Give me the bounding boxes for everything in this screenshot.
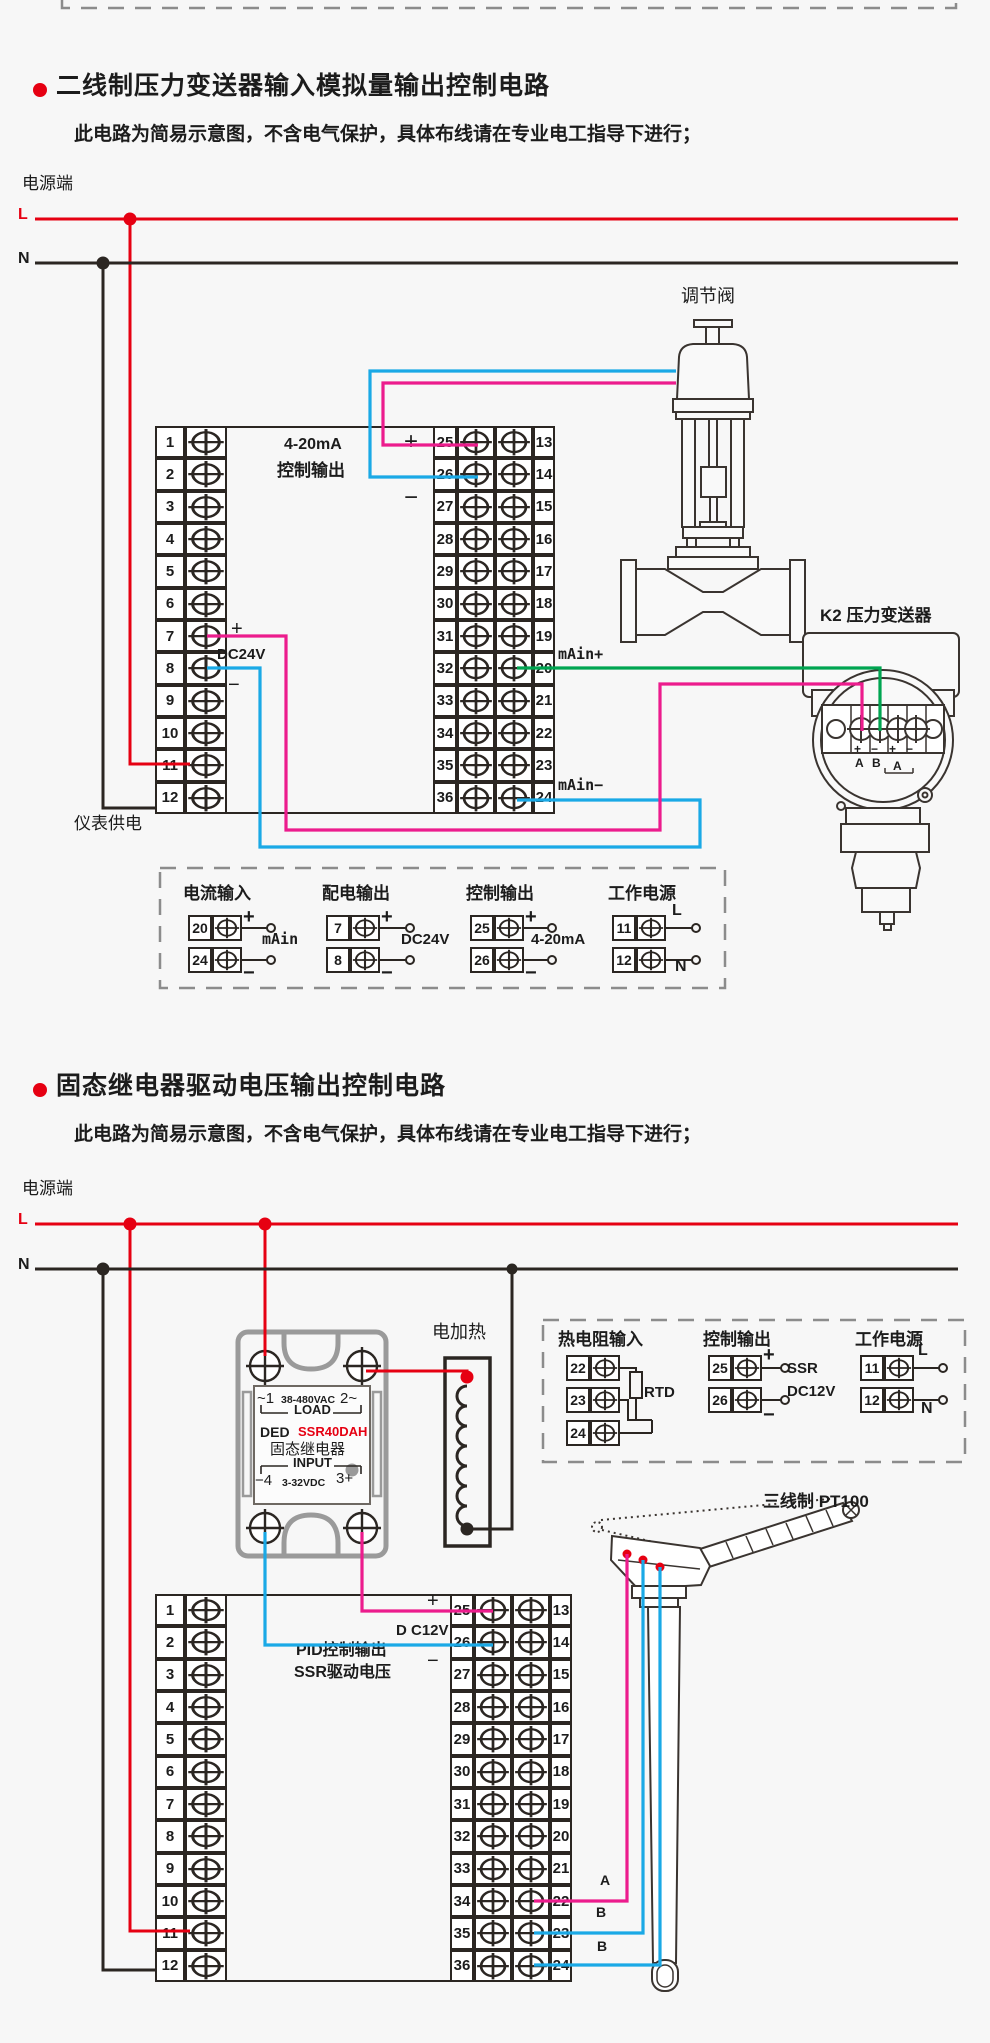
terminal-number-cell: 31: [450, 1788, 474, 1820]
wire-stub: [762, 1399, 781, 1402]
screw-terminal-icon: [187, 687, 225, 715]
ctrl-plus-sign: +: [404, 428, 418, 456]
terminal-number-cell: 1: [155, 1594, 185, 1626]
screw-terminal-icon: [187, 428, 225, 456]
terminal-screw-cell: [474, 1594, 512, 1626]
group-screw-cell: [212, 915, 242, 941]
terminal-screw-cell: [457, 426, 495, 458]
screw-terminal-icon: [459, 622, 493, 650]
terminal-number-cell: 28: [433, 523, 457, 555]
terminal-screw-cell: [474, 1723, 512, 1755]
terminal-screw-cell: [457, 717, 495, 749]
screw-terminal-icon: [187, 1693, 225, 1721]
terminal-screw-cell: [457, 555, 495, 587]
screw-terminal-icon: [514, 1919, 548, 1947]
terminal-number-cell: 14: [550, 1626, 572, 1658]
terminal-screw-cell: [185, 717, 227, 749]
transmitter-label: K2 压力变送器: [820, 606, 931, 626]
screw-terminal-icon: [497, 751, 531, 779]
screw-terminal-icon: [214, 949, 240, 971]
screw-terminal-icon: [187, 784, 225, 812]
terminal-screw-cell: [185, 1820, 227, 1852]
terminal-screw-cell: [512, 1820, 550, 1852]
section2-subtitle: 此电路为简易示意图，不含电气保护，具体布线请在专业电工指导下进行；: [74, 1124, 701, 1146]
terminal-number-cell: 29: [433, 555, 457, 587]
terminal-screw-cell: [185, 1626, 227, 1658]
terminal-screw-cell: [185, 523, 227, 555]
terminal-screw-cell: [457, 620, 495, 652]
terminal-screw-cell: [512, 1756, 550, 1788]
terminal-number-cell: 8: [155, 1820, 185, 1852]
terminal-number-cell: 24: [550, 1950, 572, 1982]
terminal-number-cell: 17: [533, 555, 555, 587]
terminal-number-cell: 19: [533, 620, 555, 652]
screw-terminal-icon: [187, 719, 225, 747]
screw-terminal-icon: [514, 1855, 548, 1883]
terminal-number-cell: 23: [550, 1917, 572, 1949]
group-screw-cell: [636, 915, 666, 941]
terminal-screw-cell: [457, 749, 495, 781]
dc12v-minus-sign: −: [427, 1650, 439, 1673]
main-plus-label: mAin+: [558, 646, 603, 663]
group-terminal-number: 12: [612, 947, 636, 973]
group-output-label: DC24V: [401, 931, 449, 948]
screw-terminal-icon: [497, 719, 531, 747]
group-terminal-number: 24: [566, 1420, 590, 1446]
terminal-number-cell: 14: [533, 458, 555, 490]
group-screw-cell: [494, 947, 524, 973]
group-sign: −: [763, 1404, 775, 1427]
screw-terminal-icon: [187, 525, 225, 553]
screw-terminal-icon: [352, 917, 378, 939]
terminal-number-cell: 22: [533, 717, 555, 749]
terminal-number-cell: 1: [155, 426, 185, 458]
screw-terminal-icon: [514, 1596, 548, 1624]
terminal-screw-cell: [185, 1691, 227, 1723]
pressure-transmitter-drawing: [803, 633, 959, 930]
terminal-number-cell: 2: [155, 458, 185, 490]
rtd-wire-label-a: A: [600, 1872, 610, 1888]
screw-terminal-icon: [187, 590, 225, 618]
terminal-number-cell: 35: [450, 1917, 474, 1949]
group-title: 配电输出: [322, 884, 390, 904]
terminal-number-cell: 33: [450, 1853, 474, 1885]
heater-label: 电加热: [432, 1322, 486, 1343]
transmitter-terminal-label: −: [871, 743, 878, 757]
terminal-screw-cell: [512, 1691, 550, 1723]
open-terminal-circle: [405, 955, 415, 965]
transmitter-terminal-label: −: [906, 743, 913, 757]
screw-terminal-icon: [187, 557, 225, 585]
ssr-brand: DED: [260, 1424, 290, 1440]
ssr-model: SSR40DAH: [298, 1425, 367, 1440]
group-terminal-number: 24: [188, 947, 212, 973]
terminal-number-cell: 9: [155, 1853, 185, 1885]
terminal-screw-cell: [185, 1917, 227, 1949]
terminal-screw-cell: [185, 1885, 227, 1917]
group-screw-cell: [732, 1355, 762, 1381]
terminal-screw-cell: [474, 1885, 512, 1917]
terminal-screw-cell: [185, 749, 227, 781]
screw-terminal-icon: [514, 1790, 548, 1818]
section2-bullet-icon: [33, 1083, 47, 1097]
group-output-label: DC12V: [787, 1383, 835, 1400]
screw-terminal-icon: [497, 493, 531, 521]
terminal-number-cell: 2: [155, 1626, 185, 1658]
terminal-screw-cell: [512, 1659, 550, 1691]
terminal-number-cell: 10: [155, 1885, 185, 1917]
terminal-screw-cell: [474, 1691, 512, 1723]
screw-terminal-icon: [476, 1725, 510, 1753]
terminal-screw-cell: [457, 782, 495, 814]
terminal-number-cell: 11: [155, 1917, 185, 1949]
wire-stub: [666, 927, 692, 930]
terminal-number-cell: 7: [155, 1788, 185, 1820]
screw-terminal-icon: [187, 1919, 225, 1947]
terminal-number-cell: 6: [155, 1756, 185, 1788]
main-minus-label: mAin−: [558, 777, 603, 794]
screw-terminal-icon: [476, 1693, 510, 1721]
screw-terminal-icon: [476, 1790, 510, 1818]
group-screw-cell: [884, 1355, 914, 1381]
group-sign: L: [672, 902, 682, 920]
terminal-screw-cell: [185, 1788, 227, 1820]
screw-terminal-icon: [496, 917, 522, 939]
pt100-sensor-drawing: [592, 1498, 859, 1991]
terminal-screw-cell: [512, 1723, 550, 1755]
terminal-screw-cell: [512, 1885, 550, 1917]
screw-terminal-icon: [592, 1389, 618, 1411]
screw-terminal-icon: [187, 1822, 225, 1850]
terminal-number-cell: 36: [433, 782, 457, 814]
terminal-number-cell: 8: [155, 652, 185, 684]
terminal-number-cell: 32: [450, 1820, 474, 1852]
terminal-number-cell: 7: [155, 620, 185, 652]
section1-subtitle: 此电路为简易示意图，不含电气保护，具体布线请在专业电工指导下进行；: [74, 124, 701, 146]
terminal-screw-cell: [185, 1853, 227, 1885]
terminal-screw-cell: [495, 426, 533, 458]
terminal-screw-cell: [185, 685, 227, 717]
group-title: 控制输出: [703, 1330, 771, 1350]
terminal-number-cell: 26: [433, 458, 457, 490]
terminal-number-cell: 33: [433, 685, 457, 717]
terminal-screw-cell: [495, 588, 533, 620]
terminal-screw-cell: [495, 717, 533, 749]
group-sign: +: [525, 906, 537, 929]
terminal-number-cell: 28: [450, 1691, 474, 1723]
terminal-number-cell: 23: [533, 749, 555, 781]
group-title: 工作电源: [608, 884, 676, 904]
pt100-label: 三线制 PT100: [763, 1492, 869, 1512]
group-sign: +: [763, 1344, 775, 1367]
screw-terminal-icon: [187, 751, 225, 779]
terminal-screw-cell: [495, 491, 533, 523]
group-output-label: RTD: [644, 1384, 675, 1401]
terminal-number-cell: 36: [450, 1950, 474, 1982]
terminal-screw-cell: [185, 555, 227, 587]
ssr-load-label: LOAD: [294, 1403, 331, 1418]
section2-title: 固态继电器驱动电压输出控制电路: [56, 1072, 446, 1101]
terminal-screw-cell: [495, 782, 533, 814]
group-sign: N: [675, 958, 687, 976]
ssr-input-label: INPUT: [293, 1456, 332, 1471]
screw-terminal-icon: [638, 949, 664, 971]
screw-terminal-icon: [187, 1596, 225, 1624]
ssr-dc-terminal-4: −4: [255, 1472, 272, 1489]
terminal-screw-cell: [185, 1950, 227, 1982]
group-title: 控制输出: [466, 884, 534, 904]
screw-terminal-icon: [187, 1952, 225, 1980]
terminal-screw-cell: [457, 458, 495, 490]
group-screw-cell: [590, 1387, 620, 1413]
wire-stub: [242, 959, 267, 962]
neutral-label-2: N: [18, 1256, 30, 1274]
terminal-number-cell: 4: [155, 1691, 185, 1723]
screw-terminal-icon: [514, 1725, 548, 1753]
terminal-screw-cell: [512, 1594, 550, 1626]
screw-terminal-icon: [592, 1422, 618, 1444]
group-terminal-number: 23: [566, 1387, 590, 1413]
transmitter-terminal-label: A: [855, 757, 864, 771]
ssr-ac-terminal-2: 2~: [340, 1390, 357, 1407]
terminal-screw-cell: [474, 1950, 512, 1982]
group-terminal-number: 26: [708, 1387, 732, 1413]
terminal-screw-cell: [185, 1723, 227, 1755]
terminal-screw-cell: [474, 1788, 512, 1820]
screw-terminal-icon: [214, 917, 240, 939]
rtd-wire-label-b1: B: [596, 1904, 606, 1920]
screw-terminal-icon: [497, 654, 531, 682]
group-screw-cell: [494, 915, 524, 941]
terminal-screw-cell: [474, 1917, 512, 1949]
group-title: 工作电源: [855, 1330, 923, 1350]
screw-terminal-icon: [497, 525, 531, 553]
terminal-number-cell: 34: [450, 1885, 474, 1917]
screw-terminal-icon: [459, 557, 493, 585]
terminal-screw-cell: [495, 555, 533, 587]
wire-stub: [914, 1367, 939, 1370]
group-screw-cell: [350, 915, 380, 941]
terminal-screw-cell: [495, 685, 533, 717]
transmitter-terminal-label: A: [893, 760, 902, 774]
wire-stub: [524, 959, 548, 962]
terminal-screw-cell: [474, 1820, 512, 1852]
group-screw-cell: [212, 947, 242, 973]
terminal-screw-cell: [512, 1950, 550, 1982]
control-valve-drawing: [621, 320, 805, 642]
screw-terminal-icon: [187, 1855, 225, 1883]
terminal-screw-cell: [512, 1853, 550, 1885]
terminal-number-cell: 12: [155, 782, 185, 814]
screw-terminal-icon: [459, 751, 493, 779]
screw-terminal-icon: [476, 1887, 510, 1915]
group-terminal-number: 7: [326, 915, 350, 941]
terminal-number-cell: 16: [533, 523, 555, 555]
output-range-label: 4-20mA: [284, 436, 342, 454]
group-output-label: SSR: [787, 1360, 818, 1377]
screw-terminal-icon: [459, 784, 493, 812]
previous-box-dashed-edge: [62, 0, 956, 8]
terminal-number-cell: 34: [433, 717, 457, 749]
group-terminal-number: 11: [612, 915, 636, 941]
terminal-number-cell: 11: [155, 749, 185, 781]
terminal-number-cell: 4: [155, 523, 185, 555]
group-screw-cell: [636, 947, 666, 973]
screw-terminal-icon: [514, 1758, 548, 1786]
power-terminal-label-1: 电源端: [22, 174, 73, 194]
screw-terminal-icon: [187, 460, 225, 488]
screw-terminal-icon: [187, 1628, 225, 1656]
screw-terminal-icon: [476, 1822, 510, 1850]
group-terminal-number: 12: [860, 1387, 884, 1413]
section1-title: 二线制压力变送器输入模拟量输出控制电路: [56, 72, 550, 101]
screw-terminal-icon: [497, 590, 531, 618]
screw-terminal-icon: [187, 1758, 225, 1786]
screw-terminal-icon: [497, 557, 531, 585]
dc24v-plus-sign: +: [231, 618, 243, 641]
open-terminal-circle: [938, 1395, 948, 1405]
terminal-number-cell: 27: [433, 491, 457, 523]
section1-bullet-icon: [33, 83, 47, 97]
terminal-screw-cell: [474, 1756, 512, 1788]
group-sign: +: [381, 906, 393, 929]
terminal-number-cell: 30: [433, 588, 457, 620]
terminal-screw-cell: [512, 1917, 550, 1949]
group-sign: N: [921, 1400, 933, 1418]
terminal-number-cell: 16: [550, 1691, 572, 1723]
screw-terminal-icon: [592, 1357, 618, 1379]
terminal-number-cell: 22: [550, 1885, 572, 1917]
pid-output-label-2: SSR驱动电压: [294, 1664, 391, 1682]
valve-label: 调节阀: [681, 286, 735, 307]
group-sign: −: [381, 962, 393, 985]
group-sign: +: [243, 906, 255, 929]
terminal-number-cell: 5: [155, 555, 185, 587]
screw-terminal-icon: [459, 654, 493, 682]
open-terminal-circle: [691, 923, 701, 933]
dc12v-plus-sign: +: [427, 1590, 439, 1613]
terminal-number-cell: 31: [433, 620, 457, 652]
group-terminal-number: 8: [326, 947, 350, 973]
power-terminal-label-2: 电源端: [22, 1179, 73, 1199]
group-screw-cell: [590, 1420, 620, 1446]
screw-terminal-icon: [514, 1952, 548, 1980]
group-screw-cell: [590, 1355, 620, 1381]
screw-terminal-icon: [514, 1628, 548, 1656]
terminal-number-cell: 30: [450, 1756, 474, 1788]
terminal-screw-cell: [512, 1788, 550, 1820]
screw-terminal-icon: [459, 687, 493, 715]
instrument-supply-label: 仪表供电: [74, 814, 142, 834]
terminal-screw-cell: [457, 588, 495, 620]
group-title: 电流输入: [183, 884, 251, 904]
open-terminal-circle: [691, 955, 701, 965]
terminal-number-cell: 25: [433, 426, 457, 458]
screw-terminal-icon: [638, 917, 664, 939]
ssr-ac-terminal-1: ~1: [257, 1390, 274, 1407]
screw-terminal-icon: [476, 1919, 510, 1947]
open-terminal-circle: [938, 1363, 948, 1373]
screw-terminal-icon: [459, 460, 493, 488]
group-terminal-number: 25: [470, 915, 494, 941]
screw-terminal-icon: [514, 1822, 548, 1850]
terminal-number-cell: 21: [533, 685, 555, 717]
group-sign: −: [243, 962, 255, 985]
screw-terminal-icon: [476, 1855, 510, 1883]
terminal-number-cell: 5: [155, 1723, 185, 1755]
open-terminal-circle: [547, 955, 557, 965]
screw-terminal-icon: [476, 1661, 510, 1689]
group-screw-cell: [350, 947, 380, 973]
terminal-screw-cell: [185, 458, 227, 490]
terminal-screw-cell: [474, 1853, 512, 1885]
terminal-screw-cell: [474, 1626, 512, 1658]
terminal-screw-cell: [457, 523, 495, 555]
wire-stub: [380, 959, 406, 962]
screw-terminal-icon: [459, 525, 493, 553]
neutral-label-1: N: [18, 250, 30, 268]
screw-terminal-icon: [459, 719, 493, 747]
screw-terminal-icon: [886, 1389, 912, 1411]
screw-terminal-icon: [497, 784, 531, 812]
ssr-dc-rating: 3-32VDC: [282, 1477, 325, 1489]
pid-output-label-1: PID控制输出: [296, 1642, 387, 1660]
group-terminal-number: 25: [708, 1355, 732, 1381]
dc12v-label: D C12V: [396, 1622, 449, 1639]
dc24v-minus-sign: −: [228, 674, 240, 697]
group-screw-cell: [884, 1387, 914, 1413]
rtd-wire-label-b2: B: [597, 1938, 607, 1954]
transmitter-terminal-label: B: [872, 757, 881, 771]
screw-terminal-icon: [187, 1725, 225, 1753]
screw-terminal-icon: [514, 1693, 548, 1721]
transmitter-terminal-label: +: [889, 743, 896, 757]
terminal-number-cell: 21: [550, 1853, 572, 1885]
terminal-number-cell: 20: [533, 652, 555, 684]
dc24v-label: DC24V: [217, 646, 265, 663]
screw-terminal-icon: [352, 949, 378, 971]
terminal-screw-cell: [495, 620, 533, 652]
terminal-number-cell: 12: [155, 1950, 185, 1982]
terminal-number-cell: 15: [533, 491, 555, 523]
control-output-label: 控制输出: [277, 461, 345, 481]
terminal-number-cell: 13: [533, 426, 555, 458]
terminal-number-cell: 26: [450, 1626, 474, 1658]
terminal-number-cell: 25: [450, 1594, 474, 1626]
terminal-number-cell: 29: [450, 1723, 474, 1755]
ctrl-minus-sign: −: [404, 484, 418, 512]
terminal-number-cell: 32: [433, 652, 457, 684]
live-label-2: L: [18, 1211, 28, 1229]
terminal-screw-cell: [512, 1626, 550, 1658]
group-terminal-number: 26: [470, 947, 494, 973]
screw-terminal-icon: [497, 687, 531, 715]
group-sign: −: [525, 962, 537, 985]
terminal-screw-cell: [185, 1756, 227, 1788]
terminal-screw-cell: [185, 491, 227, 523]
screw-terminal-icon: [187, 493, 225, 521]
terminal-number-cell: 9: [155, 685, 185, 717]
live-label-1: L: [18, 206, 28, 224]
heater-drawing: [445, 1358, 490, 1546]
terminal-screw-cell: [185, 426, 227, 458]
terminal-number-cell: 24: [533, 782, 555, 814]
terminal-screw-cell: [185, 1659, 227, 1691]
screw-terminal-icon: [734, 1389, 760, 1411]
terminal-number-cell: 17: [550, 1723, 572, 1755]
terminal-screw-cell: [474, 1659, 512, 1691]
group-title: 热电阻输入: [558, 1330, 643, 1350]
